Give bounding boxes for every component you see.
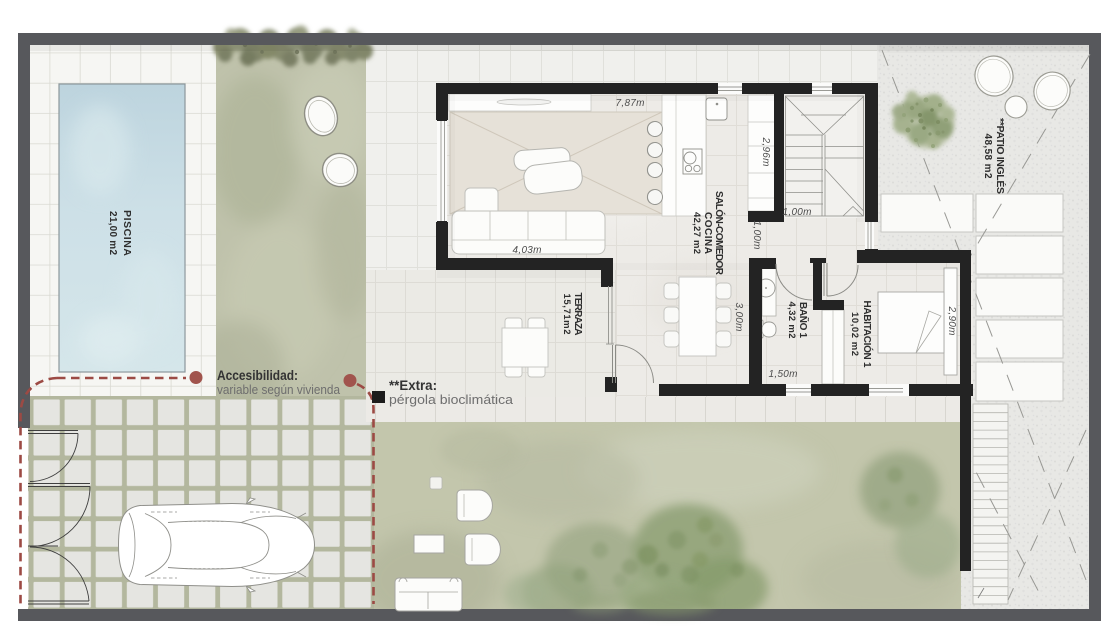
svg-text:PISCINA: PISCINA xyxy=(121,210,133,256)
svg-text:21,00 m2: 21,00 m2 xyxy=(107,211,118,255)
svg-text:BAÑO 1: BAÑO 1 xyxy=(797,302,810,338)
svg-text:1,00m: 1,00m xyxy=(751,221,762,250)
svg-text:2,90m: 2,90m xyxy=(946,306,957,336)
svg-text:Accesibilidad:: Accesibilidad: xyxy=(217,367,298,383)
svg-text:HABITACIÓN 1: HABITACIÓN 1 xyxy=(861,301,874,368)
svg-text:SALÓN-COMEDOR: SALÓN-COMEDOR xyxy=(713,191,726,276)
svg-text:3,00m: 3,00m xyxy=(733,303,744,332)
svg-text:1,50m: 1,50m xyxy=(769,369,798,380)
svg-text:4,32 m2: 4,32 m2 xyxy=(786,302,797,339)
svg-text:TERRAZA: TERRAZA xyxy=(572,293,583,336)
svg-text:4,03m: 4,03m xyxy=(513,245,542,256)
svg-text:15,71m2: 15,71m2 xyxy=(561,294,572,335)
svg-text:COCINA: COCINA xyxy=(702,212,713,254)
svg-text:pérgola bioclimática: pérgola bioclimática xyxy=(389,393,513,407)
svg-text:**PATIO INGLÉS: **PATIO INGLÉS xyxy=(994,118,1007,194)
svg-text:variable según vivienda: variable según vivienda xyxy=(217,383,340,397)
svg-text:48,58 m2: 48,58 m2 xyxy=(982,134,993,179)
svg-text:**Extra:: **Extra: xyxy=(389,377,437,393)
svg-text:1,00m: 1,00m xyxy=(783,207,812,218)
svg-text:2,96m: 2,96m xyxy=(760,137,771,167)
svg-text:42,27 m2: 42,27 m2 xyxy=(691,212,702,254)
svg-text:10,02 m2: 10,02 m2 xyxy=(849,312,860,356)
svg-text:7,87m: 7,87m xyxy=(616,98,645,109)
